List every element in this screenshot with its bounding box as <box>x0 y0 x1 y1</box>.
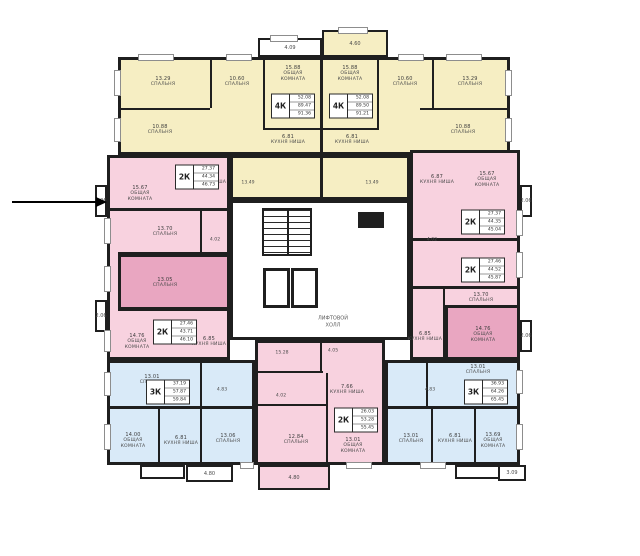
window-mark <box>104 372 111 396</box>
room-label: 6.87КУХНЯ НИША <box>415 174 459 186</box>
window-mark <box>398 54 424 61</box>
unit-area-value: 44.52 <box>480 267 504 275</box>
unit-area-value: 91.21 <box>348 111 372 118</box>
wall <box>263 128 379 130</box>
wall <box>432 57 434 108</box>
room-label: 12.84СПАЛЬНЯ <box>274 434 318 446</box>
wall <box>118 252 230 255</box>
unit-area-value: 26.03 <box>353 409 377 417</box>
unit-type: 2К <box>176 166 194 189</box>
unit-area-value: 27.37 <box>480 211 504 219</box>
balcony: 4.80 <box>258 465 330 490</box>
room-label: 15.88ОБЩАЯ КОМНАТА <box>271 65 315 83</box>
room-label: 13.70СПАЛЬНЯ <box>143 226 187 238</box>
window-mark <box>516 424 523 450</box>
unit-area-value: 89.50 <box>348 103 372 111</box>
room-label: 6.85КУХНЯ НИША <box>403 331 447 343</box>
wall <box>118 108 210 110</box>
area-label: 13.49 <box>241 181 254 186</box>
area-label: 4.02 <box>210 238 220 243</box>
window-mark <box>505 70 512 96</box>
unit-type: 3К <box>147 381 165 404</box>
unit-area-value: 44.34 <box>194 174 218 182</box>
room-label: 13.01СПАЛЬНЯ <box>456 364 500 376</box>
unit-tag: 4К52.0889.4791.36 <box>271 94 315 119</box>
unit-type: 2К <box>154 321 172 344</box>
window-mark <box>104 330 111 352</box>
entrance-arrow-head <box>96 197 107 207</box>
floor-plan: 4.094.601.962.062.062.064.804.803.09ЛИФТ… <box>0 0 640 556</box>
room-label: 6.81КУХНЯ НИША <box>266 134 310 146</box>
room-label: 14.76ОБЩАЯ КОМНАТА <box>461 326 505 344</box>
unit-type: 3К <box>465 381 483 404</box>
wall <box>320 340 322 373</box>
unit-area-value: 55.45 <box>353 425 377 432</box>
room-label: 13.70СПАЛЬНЯ <box>459 292 503 304</box>
window-mark <box>240 462 254 469</box>
room-label: 10.88СПАЛЬНЯ <box>441 124 485 136</box>
wall <box>230 153 410 156</box>
wall <box>385 406 520 409</box>
window-mark <box>270 35 298 42</box>
unit-area-value: 27.46 <box>172 321 196 329</box>
wall <box>256 404 328 406</box>
unit-area-value: 64.26 <box>483 389 507 397</box>
unit-area-value: 59.84 <box>165 397 189 404</box>
wall <box>410 286 520 289</box>
unit-tag: 2К27.3744.3545.04 <box>461 210 505 235</box>
window-mark <box>338 27 368 34</box>
window-mark <box>446 54 482 61</box>
wall <box>118 308 230 311</box>
unit-area-value: 52.08 <box>290 95 314 103</box>
wall <box>420 108 510 110</box>
area-label: 4.83 <box>217 388 227 393</box>
unit-tag: 2К27.3744.3446.73 <box>175 165 219 190</box>
wall <box>426 360 428 408</box>
room-label: 6.81КУХНЯ НИША <box>330 134 374 146</box>
unit-area-value: 27.37 <box>194 166 218 174</box>
room-label: 13.29СПАЛЬНЯ <box>141 76 185 88</box>
room-label: 13.01СПАЛЬНЯ <box>389 433 433 445</box>
window-mark <box>104 424 111 450</box>
unit-type: 2К <box>462 259 480 282</box>
area-label: 4.02 <box>276 394 286 399</box>
window-mark <box>505 118 512 142</box>
area-label: 4.02 <box>427 238 437 243</box>
room-label: 13.29СПАЛЬНЯ <box>448 76 492 88</box>
balcony: 2.06 <box>95 300 107 332</box>
room-label: 10.60СПАЛЬНЯ <box>215 76 259 88</box>
unit-area-value: 37.19 <box>165 381 189 389</box>
window-mark <box>516 370 523 394</box>
area-label: 4.05 <box>328 349 338 354</box>
window-mark <box>226 54 252 61</box>
unit-type: 4К <box>330 95 348 118</box>
unit-area-value: 27.46 <box>480 259 504 267</box>
wall <box>210 57 212 108</box>
balcony: 3.09 <box>498 465 526 481</box>
window-mark <box>104 218 111 244</box>
unit-area-value: 46.73 <box>194 182 218 189</box>
duct-shaft <box>358 212 384 228</box>
room-label: 6.81КУХНЯ НИША <box>159 435 203 447</box>
unit-area-value: 65.45 <box>483 397 507 404</box>
wall <box>443 286 445 360</box>
unit-type: 2К <box>462 211 480 234</box>
room-label: 10.60СПАЛЬНЯ <box>383 76 427 88</box>
wall <box>377 57 379 130</box>
unit-area-value: 45.04 <box>480 227 504 234</box>
unit-tag: 2К27.4643.7146.10 <box>153 320 197 345</box>
unit-area-value: 53.28 <box>353 417 377 425</box>
room-label: 13.05СПАЛЬНЯ <box>143 277 187 289</box>
entrance-arrow-line <box>12 201 96 203</box>
unit-tag: 3К37.1957.8759.84 <box>146 380 190 405</box>
room-label: 7.66КУХНЯ НИША <box>325 384 369 396</box>
room-label: 13.69ОБЩАЯ КОМНАТА <box>471 432 515 450</box>
wall <box>107 406 255 409</box>
unit-tag: 2К27.4644.5245.87 <box>461 258 505 283</box>
wall <box>107 208 230 211</box>
area-label: 15.28 <box>275 351 288 356</box>
room-label: 15.88ОБЩАЯ КОМНАТА <box>328 65 372 83</box>
window-mark <box>104 266 111 292</box>
staircase <box>262 208 312 256</box>
wall <box>200 360 202 408</box>
balcony: 2.06 <box>520 320 532 352</box>
unit-area-value: 36.93 <box>483 381 507 389</box>
room-label: 14.00ОБЩАЯ КОМНАТА <box>111 432 155 450</box>
unit-area-value: 52.08 <box>348 95 372 103</box>
unit-tag: 2К26.0353.2855.45 <box>334 408 378 433</box>
room-label: 10.88СПАЛЬНЯ <box>138 124 182 136</box>
area-label: 4.83 <box>425 388 435 393</box>
unit-type: 4К <box>272 95 290 118</box>
wall <box>263 57 265 130</box>
wall <box>230 198 410 201</box>
window-mark <box>420 462 446 469</box>
balcony <box>140 465 185 479</box>
unit-area-value: 45.87 <box>480 275 504 282</box>
unit-area-value: 57.87 <box>165 389 189 397</box>
elevator-hall-label: ЛИФТОВОЙ ХОЛЛ <box>318 316 348 329</box>
window-mark <box>346 462 372 469</box>
elevator-shaft <box>263 268 290 308</box>
unit-area-value: 46.10 <box>172 337 196 344</box>
elevator-shaft <box>291 268 318 308</box>
balcony: 4.60 <box>322 30 388 57</box>
window-mark <box>516 210 523 236</box>
wall <box>255 371 323 373</box>
area-label: 13.49 <box>365 181 378 186</box>
room-label: 13.01ОБЩАЯ КОМНАТА <box>331 437 375 455</box>
unit-type: 2К <box>335 409 353 432</box>
window-mark <box>114 118 121 142</box>
unit-area-value: 44.35 <box>480 219 504 227</box>
room-label: 15.67ОБЩАЯ КОМНАТА <box>465 171 509 189</box>
window-mark <box>138 54 174 61</box>
window-mark <box>516 252 523 278</box>
room-label: 15.67ОБЩАЯ КОМНАТА <box>118 185 162 203</box>
unit-area-value: 89.47 <box>290 103 314 111</box>
wall <box>200 210 202 252</box>
window-mark <box>114 70 121 96</box>
unit-area-value: 91.36 <box>290 111 314 118</box>
unit-tag: 3К36.9364.2665.45 <box>464 380 508 405</box>
unit-area-value: 43.71 <box>172 329 196 337</box>
unit-tag: 4К52.0889.5091.21 <box>329 94 373 119</box>
room-label: 13.06СПАЛЬНЯ <box>206 433 250 445</box>
balcony <box>455 465 500 479</box>
balcony: 4.80 <box>186 465 233 482</box>
